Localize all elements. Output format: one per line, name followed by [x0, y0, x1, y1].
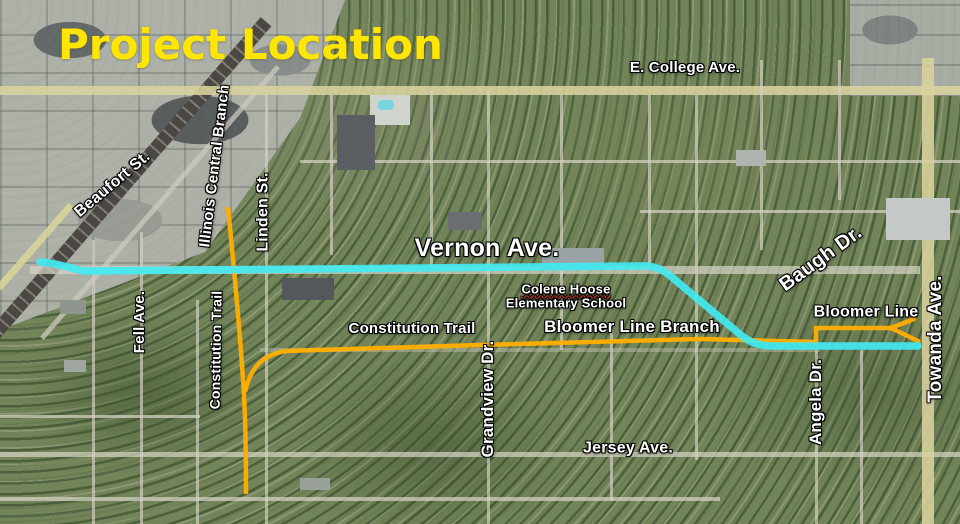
page-title: Project Location: [58, 20, 443, 69]
label-grandview-dr: Grandview Dr.: [479, 341, 497, 458]
label-angela-dr: Angela Dr.: [807, 359, 825, 445]
label-constitution-trail-horizontal: Constitution Trail: [349, 321, 476, 337]
label-colene-hoose-school: Colene Hoose Elementary School: [506, 282, 626, 309]
label-school-line2: Elementary School: [506, 296, 626, 310]
label-fell-ave: Fell Ave.: [132, 291, 148, 353]
trail-arrowhead: [891, 319, 918, 341]
label-vernon-ave: Vernon Ave.: [415, 235, 560, 261]
label-linden-st: Linden St.: [256, 172, 273, 251]
label-bloomer-line: Bloomer Line: [814, 305, 919, 322]
label-towanda-ave: Towanda Ave.: [926, 275, 946, 402]
project-location-map: E. College Ave. Beaufort St. Illinois Ce…: [0, 0, 960, 524]
label-bloomer-line-branch: Bloomer Line Branch: [544, 318, 720, 336]
label-school-line1: Colene Hoose: [506, 282, 626, 296]
trail-vertical-highlight: [228, 207, 246, 494]
label-e-college-ave: E. College Ave.: [630, 60, 740, 76]
label-constitution-trail-vertical: Constitution Trail: [208, 291, 225, 410]
trail-branch-highlight: [245, 328, 891, 392]
label-jersey-ave: Jersey Ave.: [583, 441, 673, 458]
